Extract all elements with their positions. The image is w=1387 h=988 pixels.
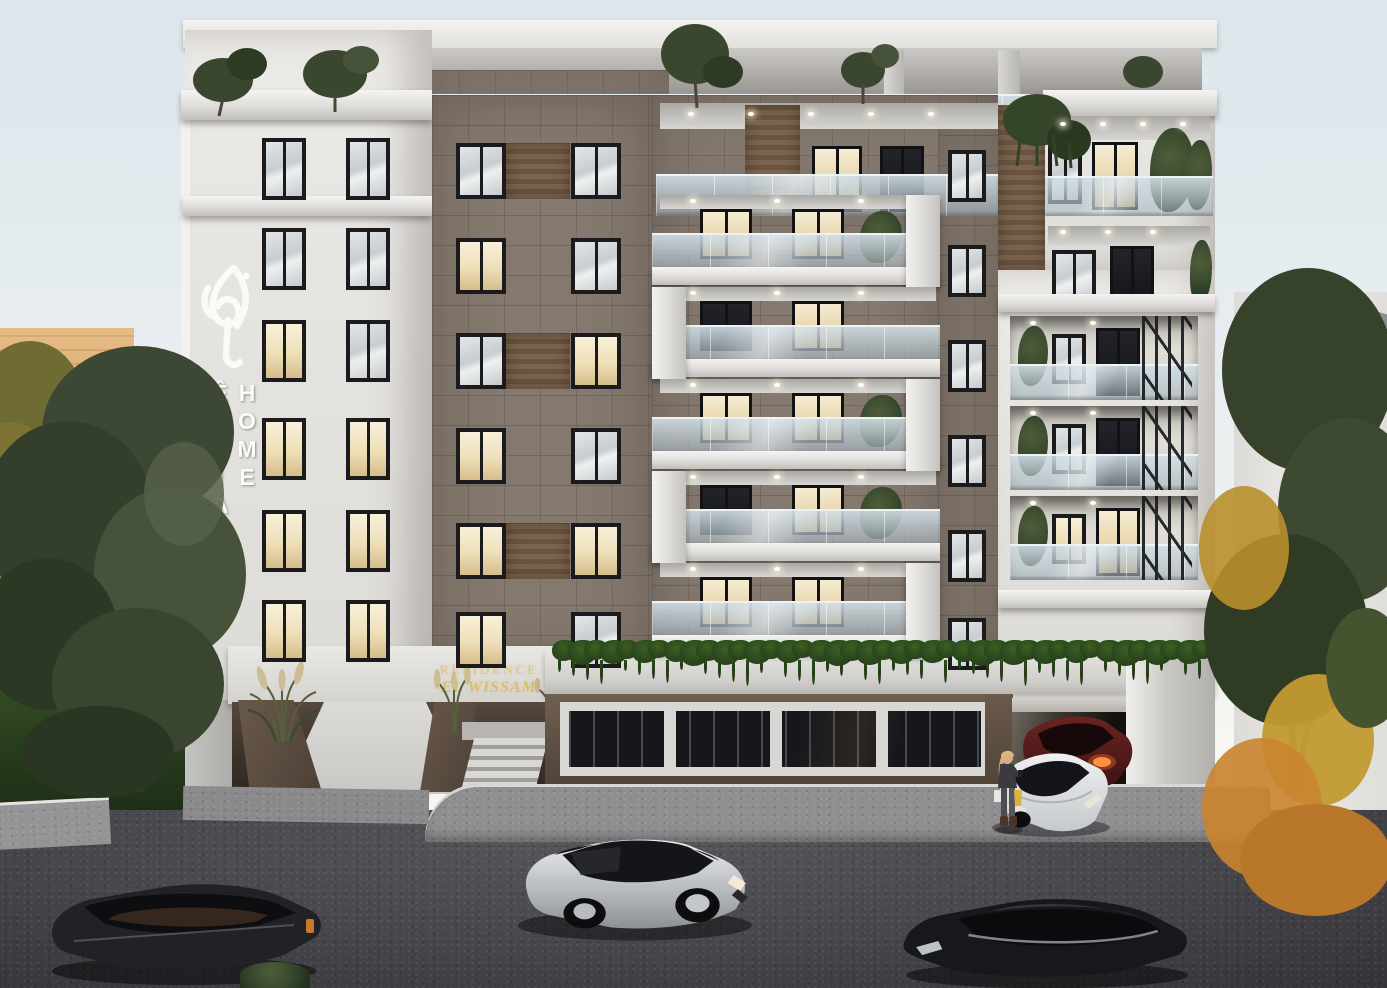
- balcony-ceiling: [660, 563, 936, 577]
- ivy-strand: [840, 660, 843, 676]
- ivy-strand: [1118, 660, 1121, 676]
- downlight: [1090, 411, 1096, 415]
- downlight: [1090, 321, 1096, 325]
- balcony-ceiling: [660, 195, 936, 209]
- downlight: [1060, 230, 1066, 234]
- balcony-wrap-column: [906, 195, 940, 287]
- ivy-strand: [1080, 660, 1083, 685]
- apartment-window: [948, 245, 986, 297]
- downlight: [808, 112, 814, 116]
- wood-accent-panel: [506, 523, 570, 579]
- apartment-window: [456, 238, 506, 294]
- downlight: [868, 112, 874, 116]
- balcony-slab: [652, 267, 940, 285]
- foreground-bush: [240, 962, 310, 988]
- balcony-wrap-column: [906, 379, 940, 471]
- balcony-slab: [652, 543, 940, 561]
- ivy-strand: [1160, 660, 1163, 671]
- downlight: [928, 112, 934, 116]
- apartment-window: [456, 612, 506, 668]
- balcony-slab: [652, 359, 940, 377]
- downlight: [774, 475, 780, 479]
- balcony-wrap-column: [652, 471, 686, 563]
- ivy-strand: [558, 660, 561, 672]
- balcony-wrap-column: [652, 287, 686, 379]
- rooftop-plants: [185, 12, 1215, 172]
- right-wing-slab: [998, 294, 1215, 312]
- entrance-stairs: [462, 738, 548, 788]
- downlight: [774, 383, 780, 387]
- right-terrace-railing: [1045, 176, 1213, 216]
- ivy-strand: [666, 660, 669, 683]
- decorative-metal-screen: [1142, 406, 1192, 490]
- ivy-strand: [572, 660, 575, 676]
- black-sedan: [898, 884, 1196, 988]
- downlight: [858, 291, 864, 295]
- balcony-ceiling: [660, 379, 936, 393]
- apartment-window: [948, 530, 986, 582]
- glass-balustrade: [652, 601, 940, 639]
- woman-with-shopping-bags: [990, 748, 1028, 834]
- silver-suv: [510, 810, 760, 944]
- apartment-window: [456, 143, 506, 199]
- downlight: [774, 567, 780, 571]
- apartment-window: [346, 228, 390, 290]
- ivy-strand: [986, 660, 989, 678]
- ivy-strand: [972, 660, 975, 674]
- apartment-window: [262, 510, 306, 572]
- apartment-window: [571, 333, 621, 389]
- ivy-strand: [1066, 660, 1069, 681]
- apartment-window: [262, 138, 306, 200]
- downlight: [1090, 501, 1096, 505]
- ivy-strand: [784, 660, 787, 677]
- downlight: [1030, 321, 1036, 325]
- ivy-strand: [944, 660, 947, 683]
- apartment-window: [346, 138, 390, 200]
- wood-accent-panel: [506, 143, 570, 199]
- balcony-slab: [652, 451, 940, 469]
- autumn-trees: [1186, 248, 1387, 916]
- downlight: [1100, 122, 1106, 126]
- apartment-window: [948, 435, 986, 487]
- ivy-strand: [760, 660, 763, 673]
- downlight: [690, 383, 696, 387]
- architectural-render-scene: ÊDDIAR HOME RESIDENCE EL WISSAM: [0, 0, 1387, 988]
- ivy-strand: [878, 660, 881, 684]
- apartment-window: [346, 600, 390, 662]
- ivy-strand: [892, 660, 895, 671]
- apartment-window: [262, 418, 306, 480]
- downlight: [858, 475, 864, 479]
- ivy-strand: [812, 660, 815, 685]
- ivy-strand: [906, 660, 909, 675]
- ivy-strand: [1038, 660, 1041, 673]
- balcony-ceiling: [660, 287, 936, 301]
- glass-balustrade: [652, 509, 940, 547]
- downlight: [688, 112, 694, 116]
- apartment-window: [571, 143, 621, 199]
- downlight: [858, 199, 864, 203]
- downlight: [774, 291, 780, 295]
- ivy-strand: [1132, 660, 1135, 680]
- downlight: [1150, 230, 1156, 234]
- ivy-strand: [746, 660, 749, 686]
- downlight: [774, 199, 780, 203]
- downlight: [690, 291, 696, 295]
- balcony-ceiling: [660, 471, 936, 485]
- ivy-strand: [704, 660, 707, 674]
- window-band-pier: [876, 706, 888, 772]
- downlight: [748, 112, 754, 116]
- ivy-strand: [798, 660, 801, 681]
- ivy-strand: [920, 660, 923, 679]
- downlight: [690, 199, 696, 203]
- ivy-strand: [638, 660, 641, 675]
- window-band-pier: [664, 706, 676, 772]
- right-wing-slab: [998, 590, 1215, 608]
- downlight: [690, 475, 696, 479]
- downlight: [1060, 122, 1066, 126]
- right-balcony-ceiling: [1048, 226, 1210, 246]
- downlight: [1030, 501, 1036, 505]
- ivy-strand: [680, 660, 683, 670]
- glass-balustrade: [652, 417, 940, 455]
- ivy-strand: [624, 660, 627, 671]
- ivy-strand: [1146, 660, 1149, 684]
- olive-trees: [0, 312, 250, 817]
- decorative-metal-screen: [1142, 496, 1192, 580]
- apartment-window: [571, 238, 621, 294]
- apartment-window: [346, 418, 390, 480]
- ivy-strand: [1052, 660, 1055, 677]
- apartment-window: [456, 333, 506, 389]
- apartment-window: [456, 523, 506, 579]
- ivy-strand: [826, 660, 829, 672]
- glass-balustrade: [652, 325, 940, 363]
- apartment-window: [346, 320, 390, 382]
- ivy-strand: [652, 660, 655, 679]
- ivy-strand: [718, 660, 721, 678]
- ivy-strand: [864, 660, 867, 680]
- apartment-window: [262, 600, 306, 662]
- apartment-window: [262, 228, 306, 290]
- left-wing-band: [183, 196, 432, 216]
- downlight: [858, 567, 864, 571]
- apartment-window: [571, 523, 621, 579]
- ivy-strand: [586, 660, 589, 680]
- apartment-window: [948, 150, 986, 202]
- downlight: [1030, 411, 1036, 415]
- downlight: [1180, 122, 1186, 126]
- downlight: [690, 567, 696, 571]
- glass-balustrade: [652, 233, 940, 271]
- window-band-pier: [770, 706, 782, 772]
- ivy-strand: [958, 660, 961, 670]
- ivy-strand: [600, 660, 603, 684]
- downlight: [858, 383, 864, 387]
- ivy-strand: [1104, 660, 1107, 672]
- apartment-window: [948, 340, 986, 392]
- wood-accent-panel: [506, 333, 570, 389]
- apartment-window: [571, 428, 621, 484]
- ivy-strand: [1024, 660, 1027, 686]
- apartment-window: [456, 428, 506, 484]
- downlight: [1105, 230, 1111, 234]
- ivy-strand: [732, 660, 735, 682]
- ivy-strand: [1000, 660, 1003, 682]
- downlight: [1140, 122, 1146, 126]
- apartment-window: [262, 320, 306, 382]
- apartment-window: [346, 510, 390, 572]
- decorative-metal-screen: [1142, 316, 1192, 400]
